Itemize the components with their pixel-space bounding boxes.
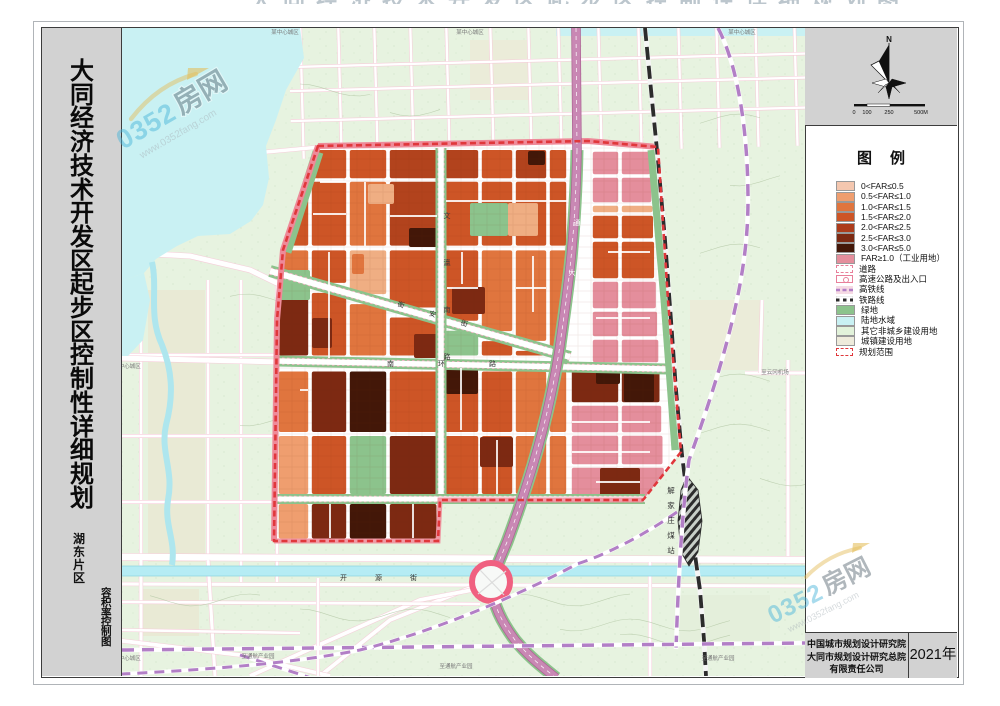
svg-text:解: 解: [667, 485, 675, 495]
svg-text:N: N: [886, 35, 892, 44]
svg-text:南: 南: [444, 305, 451, 314]
svg-text:某中心城区: 某中心城区: [728, 28, 756, 36]
svg-text:500M: 500M: [914, 110, 928, 116]
svg-text:家: 家: [667, 500, 675, 510]
svg-text:至通航产业园: 至通航产业园: [439, 662, 473, 670]
svg-text:文: 文: [444, 211, 451, 220]
svg-text:站: 站: [667, 545, 675, 555]
svg-text:至通航产业园: 至通航产业园: [701, 654, 735, 662]
svg-text:250: 250: [884, 110, 893, 116]
svg-text:某中心城区: 某中心城区: [456, 28, 484, 36]
svg-text:某中心城区: 某中心城区: [113, 654, 141, 662]
svg-text:路: 路: [444, 352, 451, 361]
svg-text:庄: 庄: [667, 515, 675, 525]
svg-text:至云冈机场: 至云冈机场: [761, 368, 789, 376]
svg-text:大: 大: [569, 268, 576, 277]
svg-text:瀛: 瀛: [444, 258, 451, 267]
svg-text:开源街: 开源街: [340, 573, 445, 582]
svg-text:0: 0: [852, 110, 855, 116]
svg-text:某中心城区: 某中心城区: [271, 28, 299, 36]
svg-text:通: 通: [574, 218, 581, 227]
svg-text:南环路: 南环路: [387, 359, 540, 368]
svg-text:某中心城区: 某中心城区: [113, 362, 141, 370]
svg-text:100: 100: [862, 110, 871, 116]
svg-text:至通航产业园: 至通航产业园: [241, 652, 275, 660]
svg-text:煤: 煤: [667, 530, 675, 540]
